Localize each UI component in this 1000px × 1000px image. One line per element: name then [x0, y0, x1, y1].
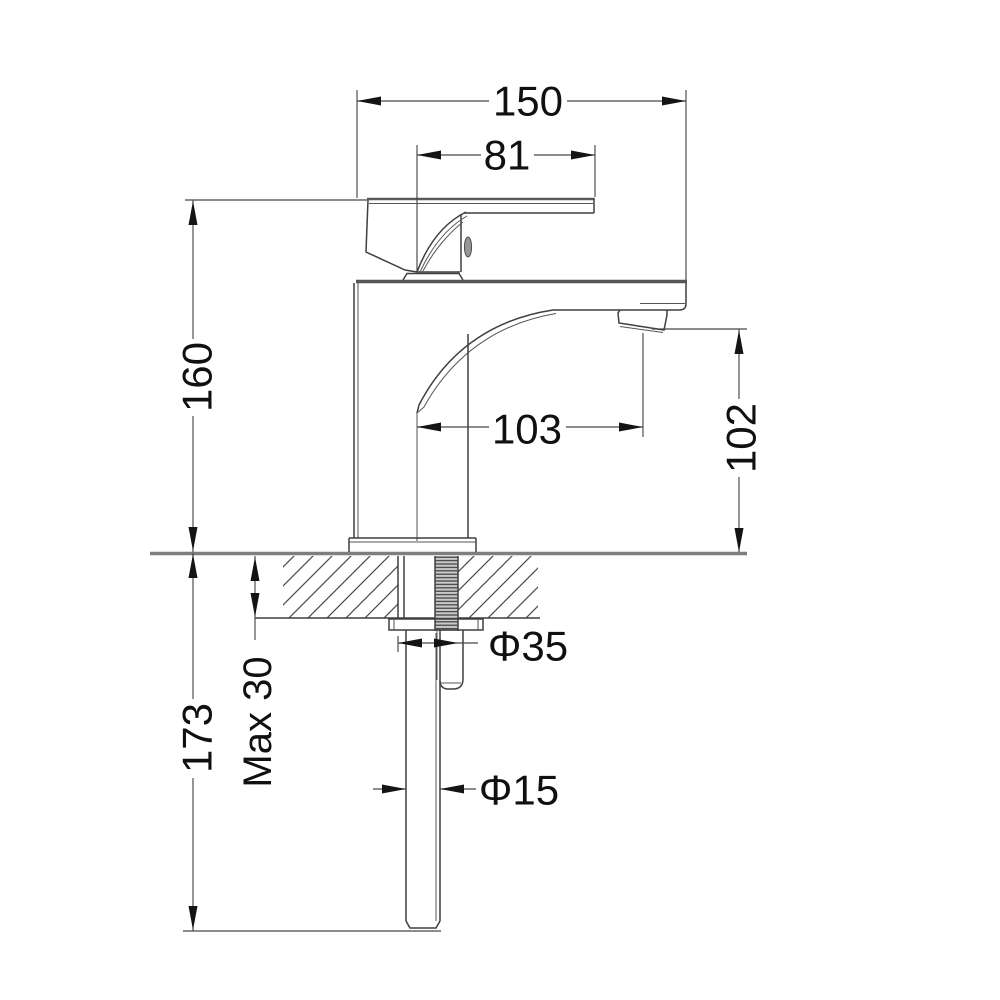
- mounting-nut: [437, 630, 463, 689]
- faucet-dimension-drawing: 150 81 160 103 102: [0, 0, 1000, 1000]
- cartridge-collar: [403, 274, 463, 281]
- dimension-150: 150: [357, 78, 686, 281]
- dim-label-102: 102: [718, 403, 765, 473]
- under-counter-assembly: [389, 556, 483, 928]
- dim-label-phi35: Φ35: [488, 623, 568, 670]
- dimension-160: 160: [174, 200, 368, 552]
- handle-lever: [367, 198, 594, 213]
- base-flange: [349, 538, 476, 552]
- body-column: [354, 283, 468, 541]
- dim-label-81: 81: [484, 132, 531, 179]
- faucet-outline: [349, 198, 687, 552]
- dimension-173: 173: [174, 553, 442, 931]
- technical-drawing-page: 150 81 160 103 102: [0, 0, 1000, 1000]
- dim-label-160: 160: [174, 342, 221, 412]
- dimension-102: 102: [652, 329, 765, 552]
- dimension-phi15: Φ15: [373, 767, 559, 814]
- dim-label-150: 150: [493, 78, 563, 125]
- dim-label-173: 173: [174, 703, 221, 773]
- dimension-max30: Max 30: [236, 556, 280, 788]
- spout: [417, 283, 686, 413]
- dim-label-max30: Max 30: [236, 656, 280, 787]
- dim-label-103: 103: [492, 406, 562, 453]
- dim-label-phi15: Φ15: [479, 767, 559, 814]
- handle-base: [366, 200, 472, 280]
- inlet-pipe: [406, 630, 440, 928]
- handle-indicator-dot: [464, 237, 471, 257]
- dimension-103: 103: [417, 333, 643, 453]
- dimension-81: 81: [417, 132, 595, 273]
